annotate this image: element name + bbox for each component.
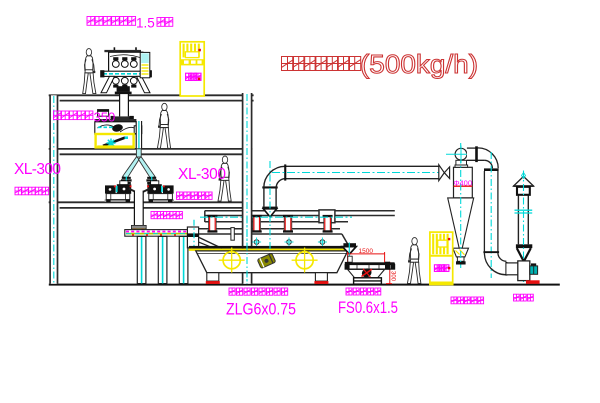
svg-text:1.5: 1.5: [136, 16, 155, 31]
svg-text:FS0.6x1.5: FS0.6x1.5: [338, 298, 398, 317]
svg-text:ZLG6x0.75: ZLG6x0.75: [226, 300, 296, 319]
svg-text:300: 300: [390, 271, 396, 282]
svg-text:XL-300: XL-300: [14, 161, 61, 178]
svg-text:1500: 1500: [359, 248, 374, 255]
svg-text:(500kg/h): (500kg/h): [360, 49, 478, 79]
svg-text:XL-300: XL-300: [178, 166, 226, 183]
svg-text:350: 350: [94, 110, 116, 125]
svg-text:Φ400: Φ400: [454, 179, 473, 188]
